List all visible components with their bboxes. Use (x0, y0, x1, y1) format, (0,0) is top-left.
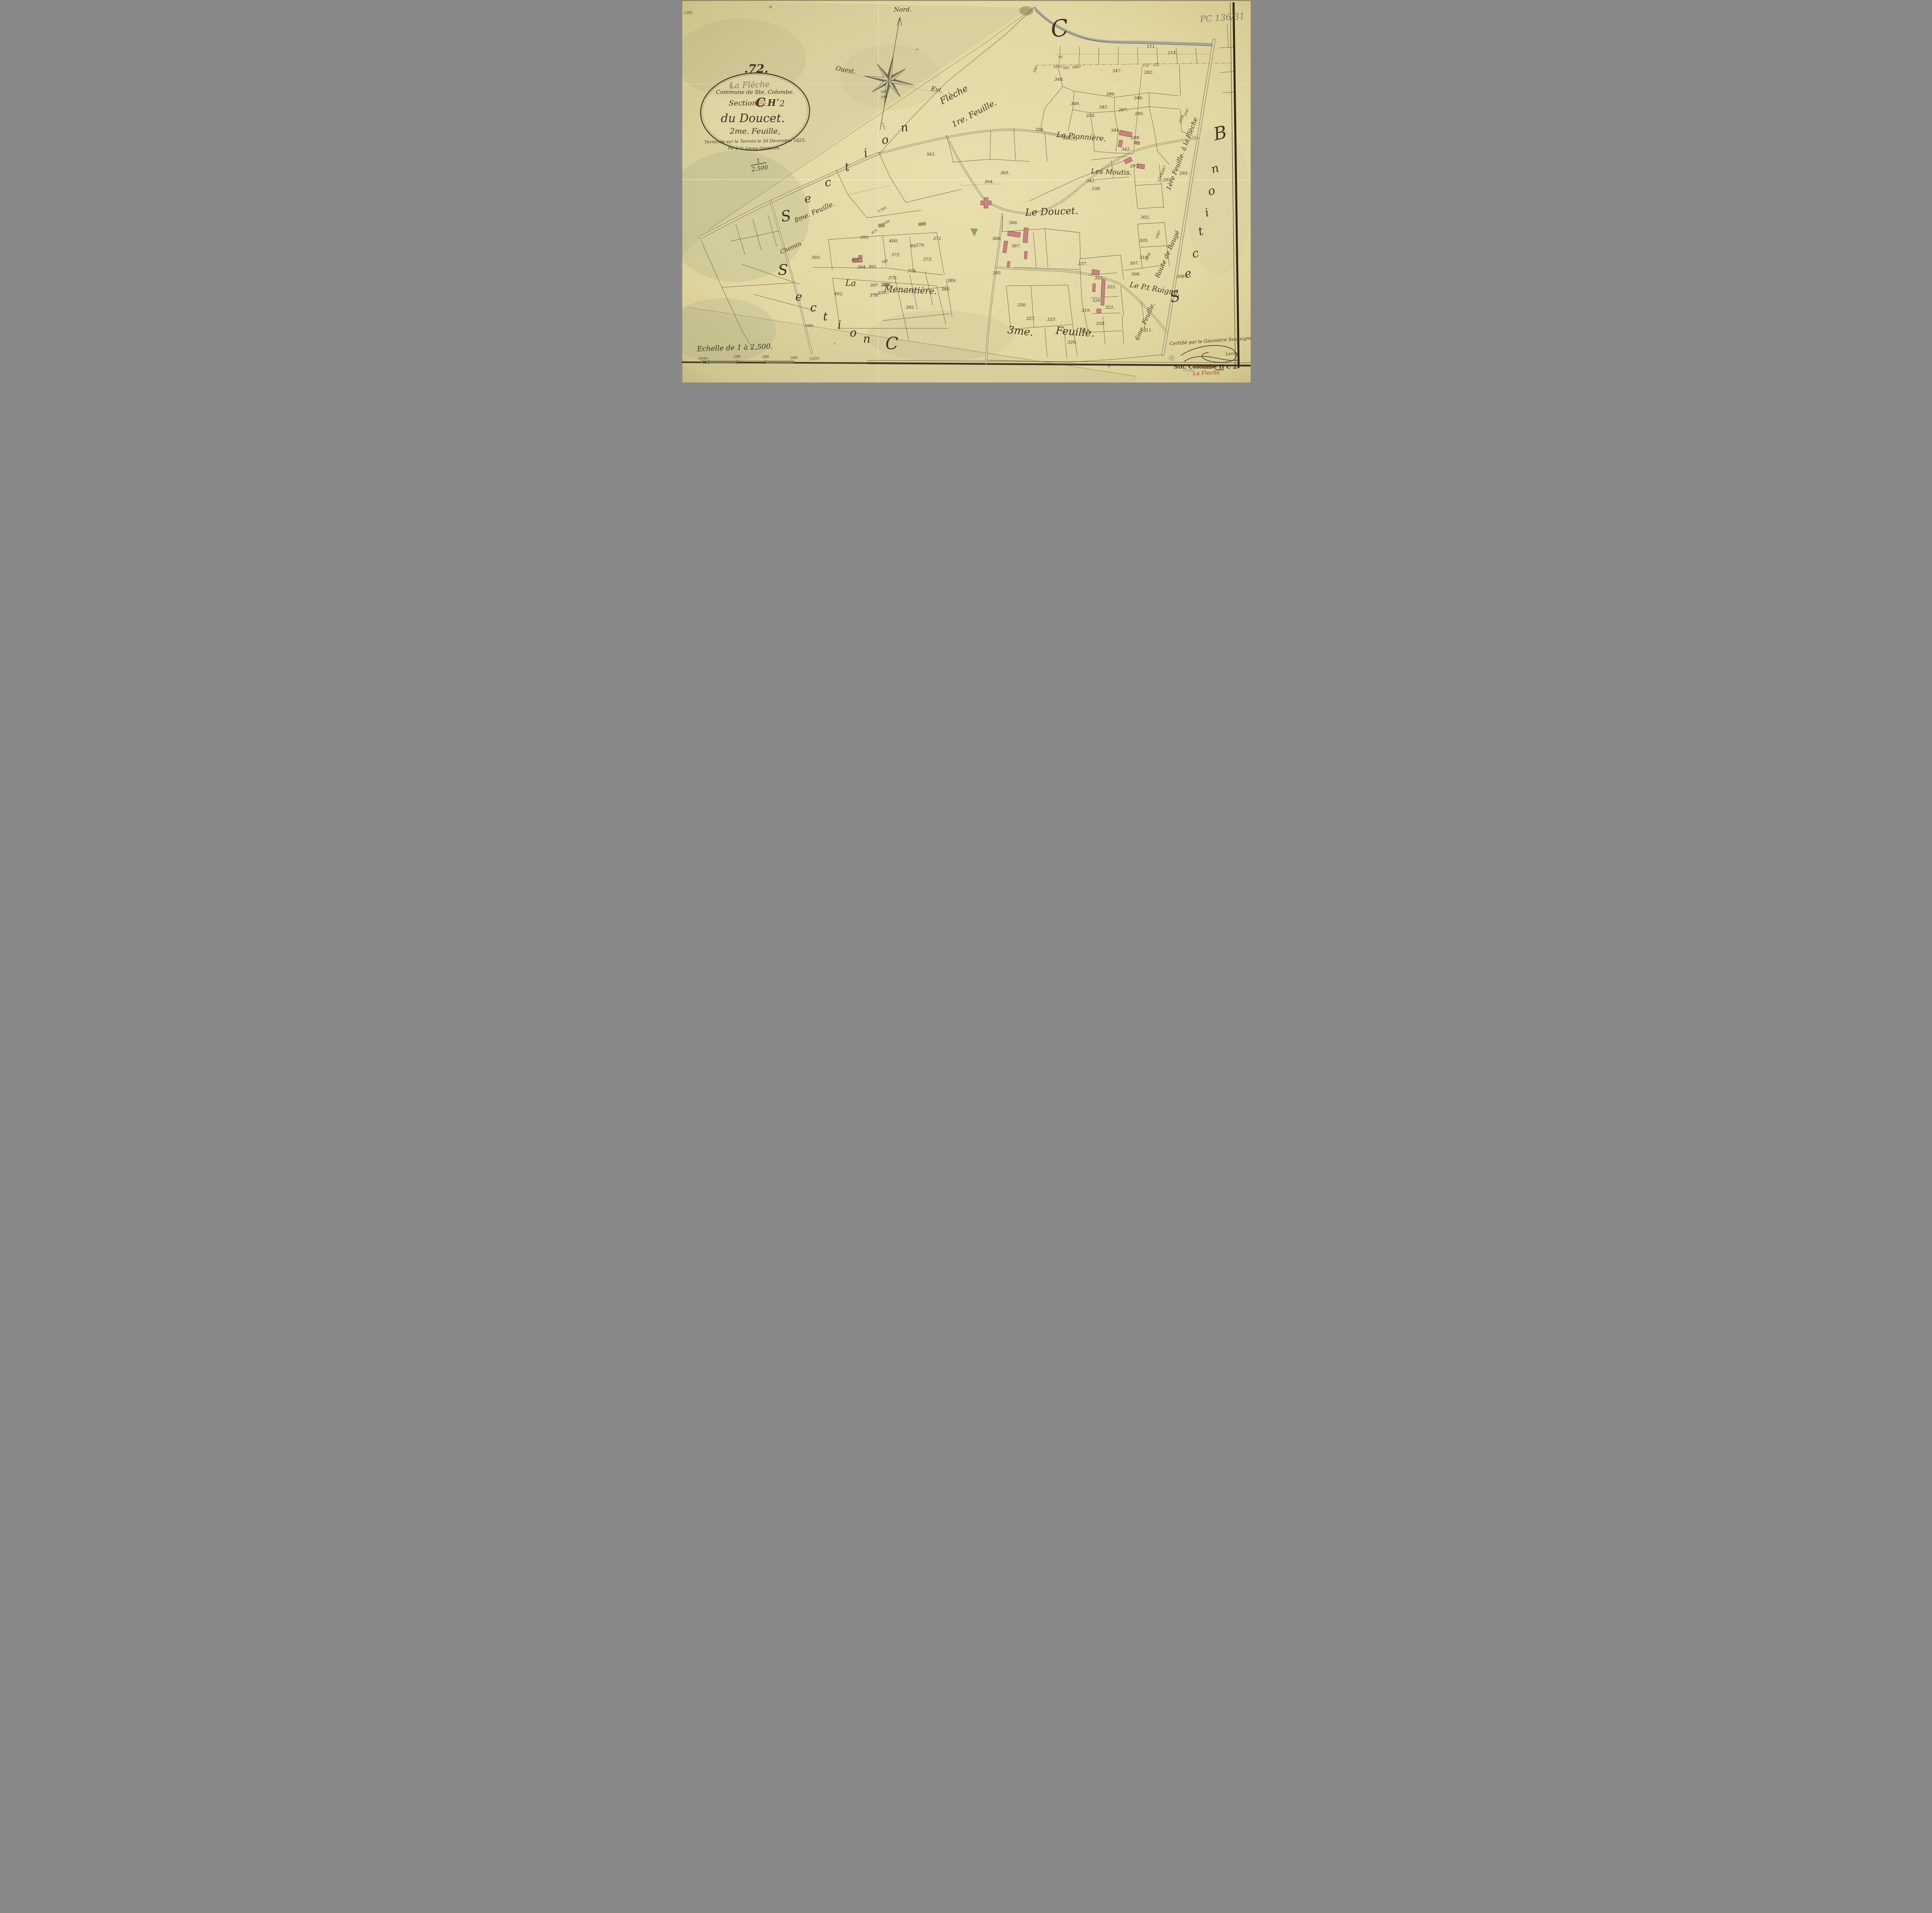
parcel-number: 397. (870, 283, 879, 288)
sheet-number: .72. (744, 62, 768, 76)
parcel-number: 385. (992, 270, 1002, 275)
parcel-number: 317. (1081, 328, 1090, 333)
parcel-number: 364. (984, 179, 993, 184)
parcel-number: 341. (1086, 179, 1095, 184)
red-survey-number: 1202. (684, 11, 693, 15)
parcel-number: 393. (811, 255, 820, 260)
parcel-number: 214. (1167, 50, 1177, 55)
parcel-number: 337. (1078, 261, 1087, 266)
parcel-number: 295. (1162, 177, 1172, 182)
parcel-number: 378. (869, 293, 879, 298)
section-letter: C (1049, 14, 1070, 43)
parcel-number: 293. (1179, 171, 1188, 176)
section-letter: c (810, 301, 816, 315)
red-survey-number: 122 (1153, 63, 1159, 67)
parcel-number: 320. (1092, 298, 1101, 303)
parcel-number: 344. (1111, 128, 1120, 133)
scale-tick: 200 (761, 355, 769, 359)
parcel-number: 287. (1118, 107, 1128, 112)
map-canvas: Nord. Ouest. Est. .72. La Flêche Commune… (682, 0, 1251, 383)
parcel-number: 380. (941, 287, 950, 292)
parcel-number: 366. (992, 236, 1001, 241)
parcel-number: 367. (1011, 243, 1020, 248)
parcel-number: 345. (1099, 105, 1108, 110)
scale-red-mark: 2000. (808, 356, 820, 361)
section-letter: o (850, 326, 857, 340)
parcel-number: 400. (888, 238, 898, 243)
parcel-number: 402. (833, 291, 843, 296)
parcel-number: 349. (1070, 101, 1080, 106)
parcel-number: 398. (880, 282, 889, 287)
parcel-number: 373. (923, 257, 932, 262)
parcel-number: 308. (1176, 274, 1185, 279)
parcel-number: 394. (857, 265, 866, 270)
parcel-number: 307. (1129, 261, 1139, 266)
parcel-number: 350. (1086, 113, 1095, 118)
parcel-number: 326. (1067, 340, 1077, 345)
parcel-number: 297. (1129, 163, 1139, 168)
parcel-number: 395. (860, 235, 869, 240)
cartouche-commune: Commune de Ste. Colombe. (716, 89, 794, 95)
stamp-red: La Fleche (1192, 370, 1219, 377)
scale-tick: 100 (733, 355, 740, 359)
parcel-number: 365. (1000, 170, 1009, 175)
parcel-number: 389. (947, 278, 956, 283)
parcel-number: 346. (1134, 95, 1143, 100)
red-survey-number: 1800. (804, 324, 814, 328)
parcel-number: 322. (1107, 284, 1116, 289)
section-letter: e (795, 290, 802, 304)
place-name-label: Le Doucet. (1024, 205, 1078, 218)
parcel-number: 370. (915, 243, 925, 248)
parcel-number: 366. (1009, 220, 1018, 225)
parcel-number: 211. (1146, 44, 1156, 49)
place-name-label: Les Moutis. (1090, 167, 1132, 177)
parcel-number: 347. (1112, 68, 1121, 73)
parcel-number: 319. (1081, 308, 1090, 313)
parcel-number: 375. (888, 275, 897, 281)
parcel-number: 286. (1105, 92, 1115, 97)
parcel-number: 330. (1017, 303, 1026, 308)
parcel-number: 374. (907, 269, 917, 274)
compass-north-label: Nord. (893, 6, 912, 13)
red-survey-number: 501 (1063, 66, 1069, 70)
cartouche-name: du Doucet. (721, 112, 785, 125)
cartouche-surveyor: Par J. O. Lecoy, Géomètre. (727, 146, 781, 151)
place-name-label: La (845, 278, 856, 288)
cartouche-section-sup: a (776, 97, 779, 102)
cartouche-pencil-title: La Flêche (729, 80, 770, 90)
red-survey-number: 132 (1143, 64, 1149, 68)
parcel-number: 354. (1035, 127, 1044, 132)
cartouche-section-h: H (767, 98, 776, 108)
parcel-number: 282. (1143, 70, 1153, 75)
section-letter: C (885, 334, 898, 354)
scale-tick: 10 (704, 357, 708, 360)
parcel-number: 305. (1139, 238, 1148, 243)
red-survey-number: 5265 (1053, 65, 1062, 69)
parcel-number: 371. (933, 236, 942, 241)
parcel-number: 342. (1121, 147, 1131, 152)
cartouche-sheet: 2me. Feuille, (729, 126, 780, 136)
cartouche-section-word: Section (729, 99, 757, 107)
parcel-number: 351. (1062, 136, 1071, 141)
parcel-number: 372. (891, 252, 900, 257)
cartouche-section-2: 2 (779, 99, 784, 108)
section-letter: i (837, 318, 841, 332)
parcel-number: 327. (1026, 316, 1035, 321)
section-letter: S (778, 262, 788, 279)
parcel-number: 321. (1105, 305, 1114, 310)
parcel-number: 325. (1047, 317, 1056, 322)
parcel-number: 392. (905, 305, 915, 310)
parcel-number: 561. (926, 152, 935, 157)
cartouche-section-c: C (755, 95, 765, 110)
parcel-number: 288. (1130, 135, 1140, 140)
parcel-number: 401. (850, 258, 860, 263)
parcel-number: 285. (1134, 111, 1144, 116)
parcel-number: 323. (1094, 275, 1104, 281)
parcel-number: 311. (1143, 328, 1152, 333)
parcel-number: 391. (868, 264, 877, 269)
parcel-number: 348. (1054, 77, 1063, 82)
parcel-number: 302. (1140, 215, 1150, 220)
section-letter: n (863, 332, 870, 346)
red-survey-number: 5097 (1072, 66, 1081, 70)
cadastral-map-sheet: Nord. Ouest. Est. .72. La Flêche Commune… (682, 0, 1251, 383)
parcel-number: 318. (1096, 321, 1105, 326)
stamp-pencil: Ecrio. (1182, 368, 1194, 372)
scale-tick: 300 (790, 356, 797, 360)
parcel-number: 306. (1131, 272, 1140, 277)
section-letter: t (823, 310, 828, 323)
parcel-number: 338. (1091, 186, 1100, 191)
